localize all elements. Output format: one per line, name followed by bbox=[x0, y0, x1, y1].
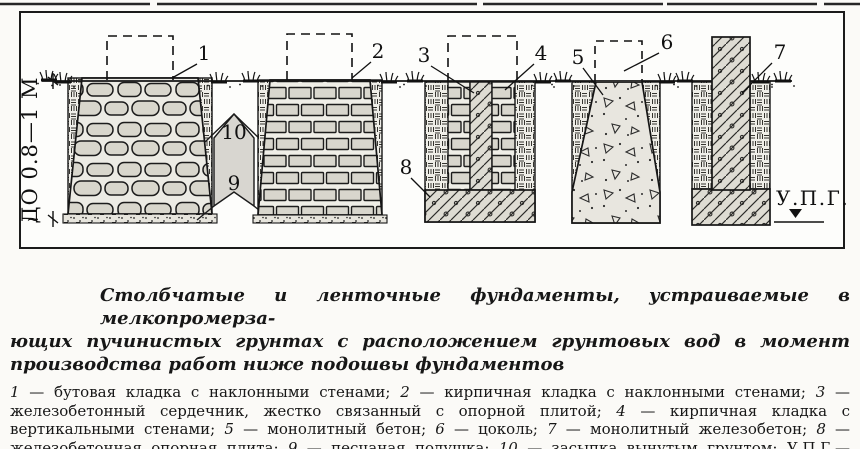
rc-base-plate bbox=[425, 190, 535, 222]
figure-caption-line-1: Столбчатые и ленточные фундаменты, устра… bbox=[10, 284, 850, 330]
approx-tilde: ~ bbox=[26, 210, 39, 229]
rc-core bbox=[470, 82, 492, 190]
figure-legend: 1 — бутовая кладка с наклонными стенами;… bbox=[10, 383, 850, 449]
sand-cushion bbox=[63, 214, 217, 223]
figure-caption-line-2: ющих пучинистых грунтах с расположением … bbox=[10, 330, 850, 353]
sand-cushion bbox=[253, 215, 387, 223]
brick-wall-right bbox=[492, 82, 515, 190]
foundation-3-core bbox=[425, 82, 535, 222]
figure-caption: Столбчатые и ленточные фундаменты, устра… bbox=[10, 284, 850, 376]
upg-label: У.П.Г. bbox=[776, 186, 849, 210]
foundations-drawing: ДО 0.8—1 М ~ bbox=[0, 0, 860, 260]
figure-diagram: ДО 0.8—1 М ~ bbox=[0, 0, 860, 260]
callout-1: 1 bbox=[198, 41, 211, 65]
plinth-body bbox=[595, 41, 642, 82]
brick-masonry bbox=[258, 80, 382, 215]
callout-7: 7 bbox=[774, 40, 787, 64]
callout-2: 2 bbox=[372, 39, 385, 63]
callout-8: 8 bbox=[400, 155, 413, 179]
callout-6: 6 bbox=[661, 30, 674, 54]
rubble-masonry bbox=[68, 78, 212, 214]
rc-column bbox=[712, 37, 750, 190]
foundation-1-rubble bbox=[63, 78, 217, 223]
rc-footing bbox=[692, 189, 770, 225]
depth-label: ДО 0.8—1 М bbox=[18, 77, 42, 224]
callout-10: 10 bbox=[221, 120, 246, 144]
callout-3: 3 bbox=[418, 43, 431, 67]
callout-4: 4 bbox=[535, 41, 548, 65]
foundation-2-brick bbox=[253, 80, 387, 223]
brick-wall-left bbox=[448, 82, 470, 190]
callout-9: 9 bbox=[228, 171, 241, 195]
callout-5: 5 bbox=[572, 45, 585, 69]
figure-caption-line-3: производства работ ниже подошвы фундамен… bbox=[10, 353, 850, 376]
